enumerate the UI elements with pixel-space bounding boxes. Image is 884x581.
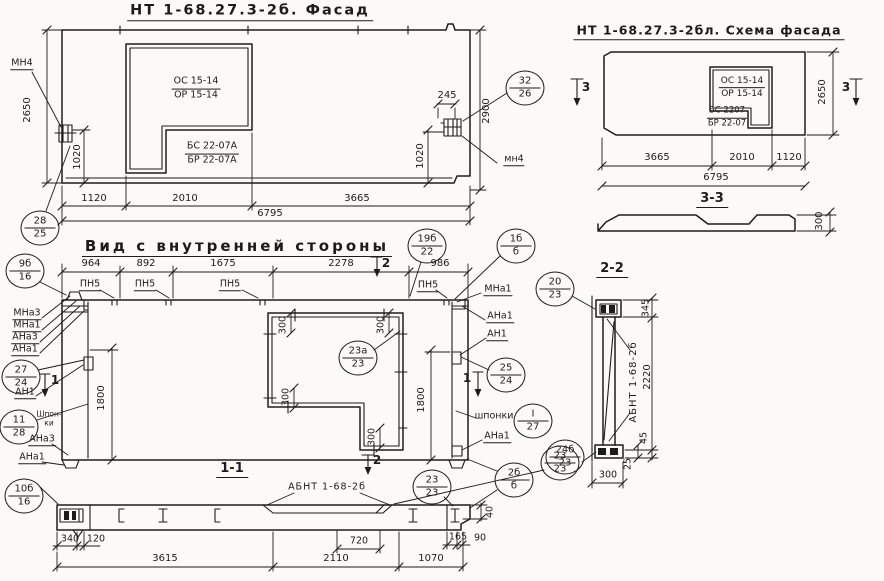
dim-1800-left: 1800: [97, 385, 107, 410]
section-mark-3-right: 3: [842, 81, 850, 93]
dim-2220: 2220: [643, 364, 653, 389]
section-mark-1-right: 1: [463, 372, 471, 384]
dim-6795: 6795: [257, 209, 282, 219]
callout-28-25: 2825: [21, 211, 60, 246]
callout-24b-23: 24б23: [546, 440, 585, 475]
joint-label-pn5-1: ПН5: [79, 279, 101, 291]
dim-3665: 3665: [344, 194, 369, 204]
callout-9b-16: 9б16: [6, 254, 45, 289]
dim-720: 720: [350, 536, 368, 546]
dim-2650-schema: 2650: [818, 79, 828, 104]
schema-window-mark: ОС 15-14 ОР 15-14: [719, 76, 765, 100]
callout-2b-b: 2бб: [495, 463, 534, 498]
joint-label-pn5-3: ПН5: [219, 279, 241, 291]
callout-25-24: 2524: [487, 358, 526, 393]
callout-32-26: 3226: [506, 71, 545, 106]
dim-2278: 2278: [328, 259, 353, 269]
dim-90: 90: [474, 533, 486, 543]
dim-6795-schema: 6795: [703, 173, 728, 183]
joint-label-pn5-4: ПН5: [417, 280, 439, 292]
dim-1800-right: 1800: [417, 387, 427, 412]
dim-2900: 2900: [482, 98, 492, 123]
anchor-label-ana3-left2: АНа3: [28, 434, 56, 446]
section-mark-1-left: 1: [51, 374, 59, 386]
schema-title: НТ 1-68.27.3-2бл. Схема фасада: [573, 24, 844, 40]
dim-300-s22: 300: [599, 470, 617, 480]
callout-20-23: 2023: [536, 272, 575, 307]
shponki-label-right: шпонки: [475, 411, 514, 421]
anchor-label-ana1-right2: АНа1: [483, 431, 511, 443]
dim-2650: 2650: [23, 97, 33, 122]
dim-300-tl: 300: [278, 316, 288, 334]
anchor-label-mna3-left: МНа3: [12, 308, 41, 320]
dim-300-schema: 300: [815, 211, 825, 230]
dim-2010: 2010: [172, 194, 197, 204]
section-mark-2-top: 2: [382, 257, 390, 269]
dim-1070: 1070: [418, 554, 443, 564]
dim-245: 245: [437, 91, 456, 101]
dim-45: 45: [639, 432, 649, 444]
dim-892: 892: [136, 259, 155, 269]
anchor-label-mn4: МН4: [10, 58, 33, 70]
anchor-label-ana3-left: АНа3: [11, 332, 39, 344]
dim-1120-schema: 1120: [776, 153, 801, 163]
callout-19b-22: 19б22: [408, 229, 447, 264]
dim-340: 340: [61, 534, 79, 544]
anchor-label-ana1-right: АНа1: [486, 311, 514, 323]
dim-2110: 2110: [323, 554, 348, 564]
schema-panel-mark: БС 2207 БР 22-07: [707, 107, 747, 130]
section-mark-2-bottom: 2: [373, 454, 381, 466]
joint-label-pn5-2: ПН5: [134, 279, 156, 291]
dim-3615: 3615: [152, 554, 177, 564]
facade-panel-mark: БС 22-07А БР 22-07А: [185, 142, 239, 167]
callout-23a-23: 23а23: [339, 341, 378, 376]
callout-23-23-a: 2323: [413, 470, 452, 505]
dim-120: 120: [87, 534, 105, 544]
dim-25: 25: [623, 458, 633, 470]
anchor-label-ana1-left: АНа1: [11, 344, 39, 356]
inner-title: Вид с внутренней стороны: [82, 239, 392, 257]
dim-1020: 1020: [73, 144, 83, 169]
section-mark-3-left: 3: [582, 81, 590, 93]
dim-300-bot: 300: [367, 428, 377, 446]
callout-I-27: I27: [514, 404, 553, 439]
section22-lines: [572, 296, 658, 488]
dim-964: 964: [81, 259, 100, 269]
abnt-label-vertical: АБНТ 1-68-2б: [629, 341, 639, 422]
dim-345: 345: [641, 299, 651, 317]
abnt-label: АБНТ 1-68-2б: [288, 482, 366, 492]
anchor-label-mna1-right: МНа1: [483, 284, 512, 296]
facade-window-mark: ОС 15-14 ОР 15-14: [172, 77, 221, 102]
anchor-label-mna1-left: МНа1: [12, 320, 41, 332]
dim-1020-right: 1020: [416, 143, 426, 168]
anchor-label-an1-left: АН1: [14, 387, 36, 399]
shponki-label-left: Шпон- ки: [36, 410, 61, 427]
dim-1120: 1120: [81, 194, 106, 204]
facade-title: НТ 1-68.27.3-2б. Фасад: [127, 3, 373, 21]
dim-300-ml: 300: [281, 388, 291, 406]
callout-1b-b: 1бб: [497, 229, 536, 264]
dim-165: 165: [449, 532, 467, 542]
section-2-2-title: 2-2: [596, 262, 628, 278]
dim-2010-schema: 2010: [729, 153, 754, 163]
callout-10b-16: 10б16: [5, 479, 44, 514]
anchor-label-ana1-left2: АНа1: [18, 452, 46, 464]
section-1-1-title: 1-1: [216, 462, 248, 478]
section-3-3-title: 3-3: [696, 192, 728, 208]
dim-40: 40: [485, 506, 495, 518]
anchor-label-an1-right: АН1: [486, 329, 508, 341]
dim-1675: 1675: [210, 259, 235, 269]
dim-3665-schema: 3665: [644, 153, 669, 163]
blueprint-sheet: НТ 1-68.27.3-2б. Фасад МН4 ОС 15-14 ОР 1…: [0, 0, 884, 581]
dim-300-tr: 300: [376, 316, 386, 334]
anchor-label-mn4-right: мн4: [503, 154, 524, 166]
